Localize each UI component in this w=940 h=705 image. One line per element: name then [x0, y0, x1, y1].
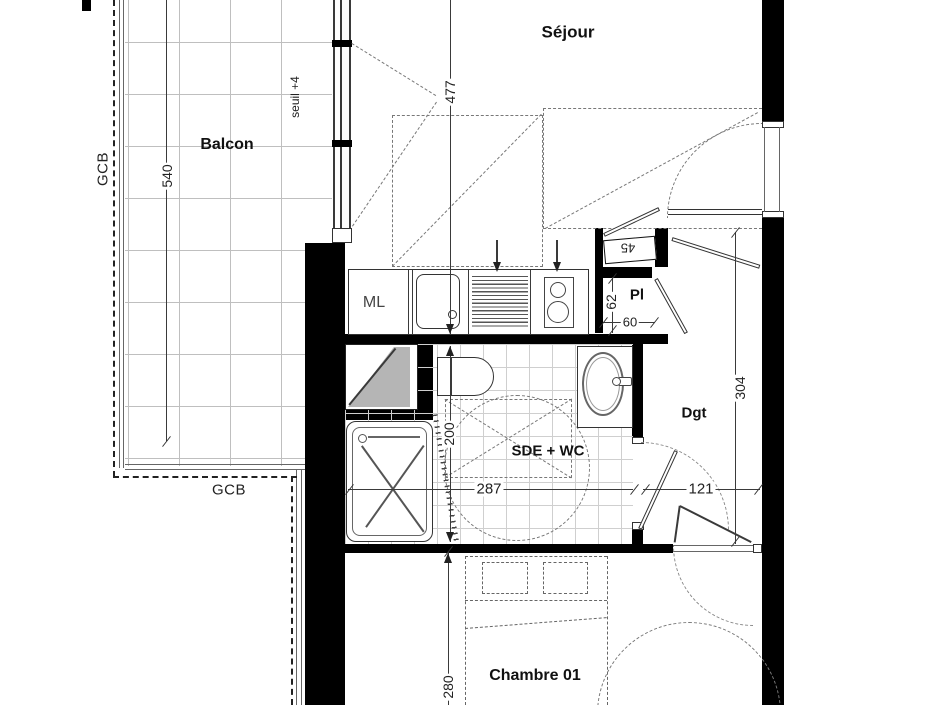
wall-stub-top-left	[82, 0, 91, 11]
balcony-edge-line	[296, 469, 297, 705]
toilet	[437, 357, 494, 396]
window-glazing-line	[349, 0, 351, 243]
room-label-balcon: Balcon	[200, 137, 253, 153]
entry-door-frame-bottom	[762, 211, 784, 218]
dim-arrow-200-bottom	[446, 532, 454, 542]
window-glazing-line	[333, 0, 335, 243]
label-seuil: seuil +4	[289, 76, 301, 118]
cooktop-burner-small	[550, 282, 566, 298]
wall-dgt-west-lower	[632, 530, 643, 545]
dim-line-540	[166, 0, 167, 441]
wall-closet-right	[655, 228, 668, 267]
dim-label-287: 287	[474, 482, 503, 497]
basin-tap-knob	[612, 377, 621, 386]
toilet-tank-line	[451, 358, 452, 395]
dim-label-60: 60	[621, 316, 639, 329]
guardrail-line-bottom	[113, 476, 297, 478]
counter-divider	[530, 270, 531, 334]
balcony-edge-line	[123, 0, 124, 468]
entry-arrow-down-icon	[553, 262, 561, 272]
balcony-edge-line	[301, 469, 302, 705]
sde-door-swing-arc	[641, 442, 729, 530]
counter-divider	[412, 270, 413, 334]
room-label-sde: SDE + WC	[512, 444, 585, 459]
wall-dgt-west-upper	[632, 344, 643, 437]
wall-sde-bottom	[305, 544, 673, 553]
bed-outline-top	[465, 556, 607, 557]
interior-wall-west	[305, 243, 345, 705]
room-label-dgt: Dgt	[682, 406, 707, 421]
balcony-edge-line	[119, 0, 120, 468]
balcony-edge-line	[125, 464, 305, 465]
pillow	[482, 562, 528, 594]
entry-opening-line	[779, 127, 780, 212]
pl-door-leaf	[654, 278, 688, 334]
shower-line	[368, 436, 420, 438]
bedroom-door-hinge-block	[753, 544, 762, 553]
dim-label-62: 62	[604, 292, 618, 312]
dim-arrow-200-top	[446, 346, 454, 356]
drainboard	[472, 276, 528, 327]
kitchen-sink	[416, 274, 460, 329]
window-mullion	[332, 140, 352, 147]
window-glazing-line	[340, 0, 342, 243]
entry-arrow-shaft	[496, 240, 498, 264]
cooktop-burner-large	[547, 301, 569, 323]
dim-label-200: 200	[442, 420, 456, 447]
room-label-sejour: Séjour	[542, 24, 595, 41]
window-end-frame	[332, 228, 352, 243]
closet-door-leaf	[671, 237, 760, 269]
label-gcb-bottom: GCB	[212, 483, 246, 498]
dim-label-540: 540	[160, 162, 174, 189]
guardrail-line-right	[291, 476, 293, 705]
room-label-pl: Pl	[630, 288, 644, 303]
entry-door-frame-top	[762, 121, 784, 128]
exterior-wall-right	[762, 218, 784, 705]
entry-arrow-down-icon	[493, 262, 501, 272]
dim-label-304: 304	[733, 374, 747, 401]
wall-closet-divider	[595, 267, 652, 278]
entry-arrow-shaft	[556, 240, 558, 264]
exterior-wall-right-top	[762, 0, 784, 122]
bed-headboard-line	[465, 600, 607, 601]
wall-closet-left	[595, 228, 603, 333]
bed-outline-left	[465, 556, 466, 705]
bedroom-turning-circle	[597, 622, 781, 705]
balcony-edge-line	[125, 469, 305, 470]
dim-label-45: 45	[621, 242, 635, 255]
bedroom-door-swing-arc	[673, 546, 753, 626]
floor-plan: Séjour Balcon Chambre 01 SDE + WC Dgt Pl…	[0, 0, 940, 705]
bed-blanket-line	[465, 617, 607, 629]
label-washing-machine: ML	[363, 295, 385, 311]
balcony-door-swing-line	[351, 43, 436, 96]
guardrail-line-left	[113, 0, 115, 477]
wall-sde-top	[345, 334, 668, 344]
dim-label-477: 477	[443, 78, 457, 105]
dim-arrow-477	[446, 324, 454, 334]
pillow	[543, 562, 588, 594]
dim-line-477	[450, 0, 451, 334]
shower-drain	[358, 434, 367, 443]
dim-label-121: 121	[686, 482, 715, 497]
balcony-floor	[125, 0, 332, 466]
counter-divider	[468, 270, 469, 334]
entry-opening-line	[764, 127, 765, 212]
room-label-chambre: Chambre 01	[489, 668, 581, 684]
label-gcb-left: GCB	[96, 152, 111, 186]
window-mullion	[332, 40, 352, 47]
counter-divider	[408, 270, 409, 334]
dim-label-280: 280	[441, 673, 455, 700]
